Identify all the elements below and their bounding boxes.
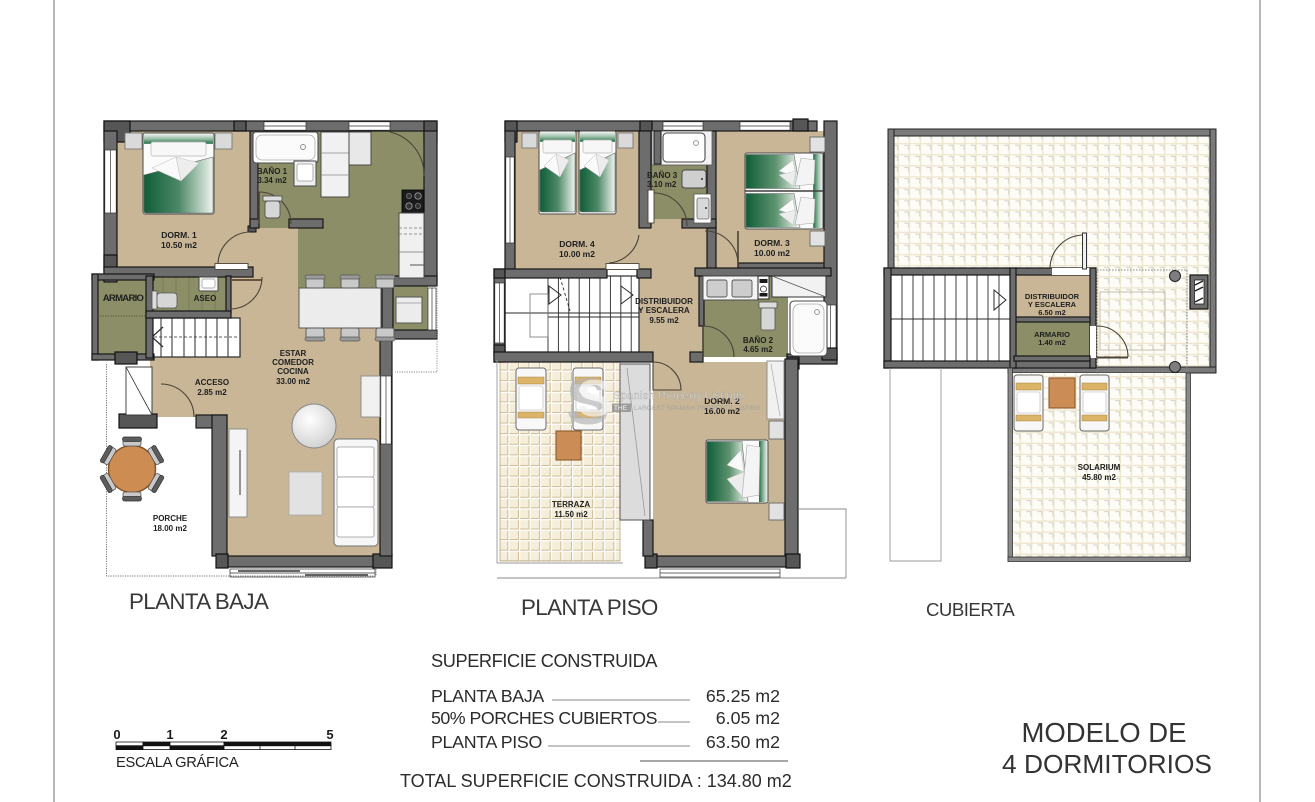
svg-text:SUPERFICIE CONSTRUIDA: SUPERFICIE CONSTRUIDA <box>431 651 658 671</box>
svg-text:TERRAZA: TERRAZA <box>552 500 590 509</box>
svg-text:BAÑO 3: BAÑO 3 <box>647 171 678 180</box>
svg-text:TOTAL SUPERFICIE CONSTRUIDA :: TOTAL SUPERFICIE CONSTRUIDA : 134.80 m2 <box>400 771 792 791</box>
svg-text:Spanish Property Listings: Spanish Property Listings <box>613 390 745 402</box>
svg-text:5: 5 <box>326 727 333 742</box>
svg-text:DISTRIBUIDOR: DISTRIBUIDOR <box>635 297 693 306</box>
svg-text:45.80 m2: 45.80 m2 <box>1082 473 1116 482</box>
svg-text:LARGEST SPANISH PROPERTY LISTI: LARGEST SPANISH PROPERTY LISTING <box>634 405 761 412</box>
svg-text:PLANTA PISO: PLANTA PISO <box>431 732 542 752</box>
svg-text:3.10 m2: 3.10 m2 <box>647 180 677 189</box>
svg-text:DORM. 1: DORM. 1 <box>161 230 197 240</box>
svg-text:ESTAR: ESTAR <box>280 349 307 358</box>
svg-text:BAÑO 1: BAÑO 1 <box>257 167 288 176</box>
svg-text:PORCHE: PORCHE <box>153 514 188 523</box>
svg-text:SOLARIUM: SOLARIUM <box>1078 463 1121 472</box>
svg-text:ARMARIO: ARMARIO <box>103 293 144 304</box>
svg-text:6.50 m2: 6.50 m2 <box>1038 308 1066 317</box>
svg-text:10.00 m2: 10.00 m2 <box>754 248 790 258</box>
svg-text:CUBIERTA: CUBIERTA <box>926 599 1015 620</box>
svg-text:PLANTA BAJA: PLANTA BAJA <box>431 686 544 706</box>
svg-text:3.34 m2: 3.34 m2 <box>257 176 287 185</box>
svg-text:Y ESCALERA: Y ESCALERA <box>638 306 690 315</box>
svg-text:ACCESO: ACCESO <box>195 378 229 387</box>
svg-text:2: 2 <box>220 727 227 742</box>
svg-text:BAÑO 2: BAÑO 2 <box>743 336 774 345</box>
svg-text:S: S <box>577 370 612 428</box>
svg-text:11.50 m2: 11.50 m2 <box>554 510 588 519</box>
svg-text:MODELO DE: MODELO DE <box>1021 717 1186 748</box>
svg-text:9.55 m2: 9.55 m2 <box>649 316 679 325</box>
svg-text:65.25 m2: 65.25 m2 <box>706 686 780 706</box>
svg-text:1.40 m2: 1.40 m2 <box>1038 338 1066 347</box>
svg-text:2.85 m2: 2.85 m2 <box>197 388 227 397</box>
svg-text:4 DORMITORIOS: 4 DORMITORIOS <box>1002 749 1212 779</box>
svg-text:50% PORCHES CUBIERTOS: 50% PORCHES CUBIERTOS <box>431 708 658 728</box>
svg-text:18.00 m2: 18.00 m2 <box>153 524 187 533</box>
svg-text:THE: THE <box>614 405 627 412</box>
svg-text:ESCALA GRÁFICA: ESCALA GRÁFICA <box>116 754 239 771</box>
svg-text:33.00 m2: 33.00 m2 <box>276 377 310 386</box>
svg-text:PLANTA PISO: PLANTA PISO <box>521 595 658 620</box>
svg-text:0: 0 <box>113 727 120 742</box>
svg-text:COCINA: COCINA <box>277 367 309 376</box>
svg-text:DORM. 3: DORM. 3 <box>754 238 790 248</box>
svg-text:10.00 m2: 10.00 m2 <box>559 249 595 259</box>
svg-text:PLANTA BAJA: PLANTA BAJA <box>129 589 269 614</box>
svg-text:DORM. 4: DORM. 4 <box>559 239 595 249</box>
svg-text:ASEO: ASEO <box>194 294 217 303</box>
svg-text:6.05 m2: 6.05 m2 <box>716 708 780 728</box>
svg-text:63.50 m2: 63.50 m2 <box>706 732 780 752</box>
svg-text:10.50 m2: 10.50 m2 <box>161 240 197 250</box>
svg-text:COMEDOR: COMEDOR <box>272 358 314 367</box>
svg-text:4.65 m2: 4.65 m2 <box>743 345 773 354</box>
svg-text:1: 1 <box>166 727 173 742</box>
